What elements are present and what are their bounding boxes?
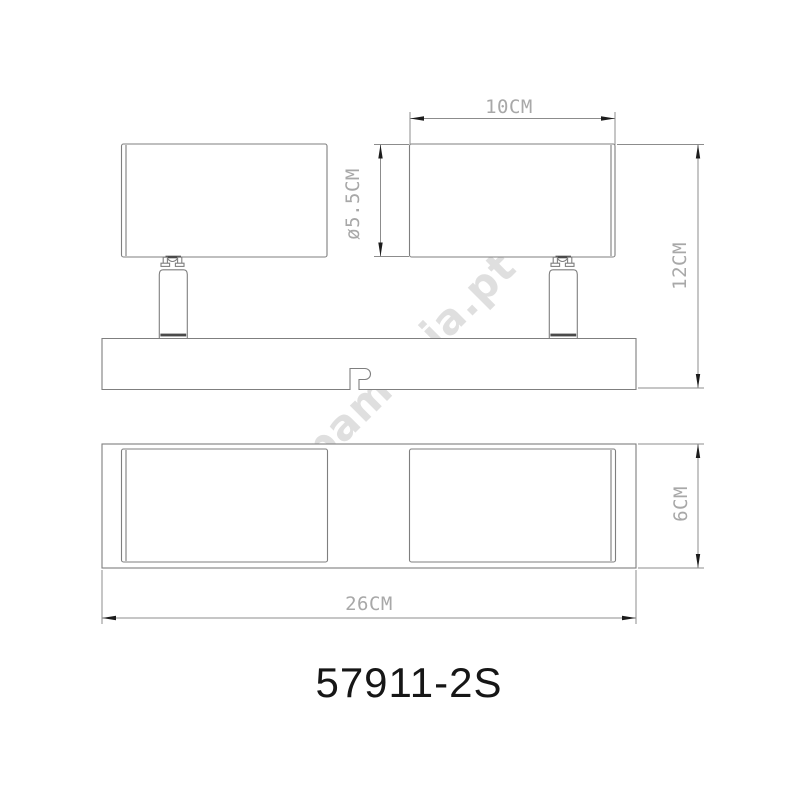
dimension-base-depth: 6CM <box>638 444 704 568</box>
arrowhead-right <box>622 616 636 620</box>
right-stem <box>549 257 577 339</box>
left-lamp-head-shade <box>122 144 328 257</box>
bottom-right-head-outline <box>410 449 616 562</box>
arrowhead-top <box>696 145 700 159</box>
arrowhead-left <box>410 116 424 120</box>
dimension-label-base-depth: 6CM <box>670 486 692 522</box>
dimension-label-total-height: 12CM <box>669 242 691 290</box>
dimension-head-width: 10CM <box>410 96 615 145</box>
dimension-label-head-diameter: ø5.5CM <box>342 168 364 240</box>
model-number: 57911-2S <box>315 659 502 706</box>
arrowhead-top <box>378 145 382 159</box>
arrowhead-top <box>696 444 700 458</box>
bottom-view-left-head <box>122 449 328 562</box>
right-stem-foot-right <box>565 263 574 266</box>
base-bar <box>102 339 636 390</box>
lamp-dimension-diagram: lampamania.pt <box>0 0 800 800</box>
right-stem-collar <box>550 334 576 337</box>
bottom-left-head-outline <box>122 449 328 562</box>
arrowhead-bottom <box>378 243 382 257</box>
left-stem-body <box>159 270 187 339</box>
right-stem-body <box>549 270 577 339</box>
arrowhead-right <box>601 116 615 120</box>
dimension-label-head-width: 10CM <box>485 96 533 118</box>
arrowhead-left <box>102 616 116 620</box>
technical-drawing-page: lampamania.pt <box>0 0 800 800</box>
bottom-view-right-head <box>410 449 616 562</box>
dimension-base-width: 26CM <box>102 570 636 624</box>
dimension-label-base-width: 26CM <box>345 593 393 615</box>
left-stem-foot-right <box>175 263 184 266</box>
right-stem-yoke-arch <box>557 259 567 262</box>
left-stem <box>159 257 187 339</box>
arrowhead-bottom <box>696 374 700 388</box>
left-stem-yoke-arch <box>167 259 177 262</box>
left-stem-collar <box>160 334 186 337</box>
left-stem-foot-left <box>161 263 170 266</box>
arrowhead-bottom <box>696 554 700 568</box>
right-stem-foot-left <box>551 263 560 266</box>
right-lamp-head <box>410 144 616 257</box>
dimension-head-diameter: ø5.5CM <box>342 145 409 257</box>
left-lamp-head <box>122 144 328 257</box>
right-lamp-head-shade <box>410 144 616 257</box>
front-view <box>102 144 636 390</box>
bottom-view <box>102 444 636 568</box>
